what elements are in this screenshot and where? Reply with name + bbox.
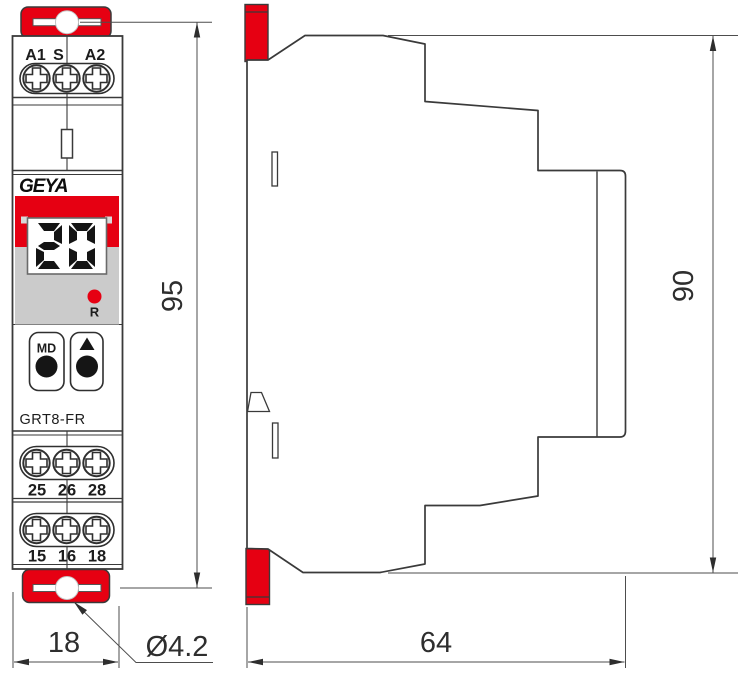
label-a2: A2: [85, 47, 106, 64]
screw-terminal: [23, 65, 49, 91]
fuse-symbol: [62, 130, 73, 159]
side-body-outline: [247, 36, 626, 573]
terminal-row-bottom: 15 16 18: [20, 514, 114, 566]
screw-terminal: [53, 65, 79, 91]
label-18: 18: [88, 548, 106, 566]
din-clip-bottom: [246, 549, 270, 605]
screw-terminal: [83, 65, 109, 91]
label-a1: A1: [25, 47, 46, 64]
dimension-64: 64: [247, 576, 626, 668]
side-vent-slot-top: [272, 152, 278, 186]
dimension-value-90: 90: [668, 270, 700, 302]
bottom-mounting-tab: [23, 570, 110, 603]
dimension-value-64: 64: [420, 627, 452, 659]
label-28: 28: [88, 482, 106, 500]
terminal-row-middle: 25 26 28: [20, 447, 114, 500]
screw-terminal: [83, 450, 109, 476]
mode-button-knob: [36, 356, 58, 378]
side-vent-slot-bottom: [273, 423, 279, 458]
brand-logo: GEYA: [19, 176, 68, 197]
terminal-row-top: [20, 64, 114, 94]
label-15: 15: [28, 548, 46, 566]
din-clip-top-red: [245, 5, 268, 62]
screw-terminal: [23, 517, 49, 543]
bottom-slot-right: [79, 585, 102, 592]
display-module: R: [15, 196, 119, 325]
mode-button-label: MD: [37, 342, 56, 356]
screw-terminal: [23, 450, 49, 476]
top-mounting-hole: [56, 11, 79, 34]
screw-terminal: [53, 517, 79, 543]
up-button-knob: [76, 356, 98, 378]
bottom-mounting-hole: [56, 577, 79, 600]
reset-led-label: R: [90, 305, 100, 320]
technical-drawing: A1 S A2 GEYA: [0, 0, 750, 688]
label-s: S: [53, 47, 64, 64]
front-view: A1 S A2 GEYA: [13, 7, 123, 603]
screw-terminal: [53, 450, 79, 476]
top-slot-left: [33, 19, 57, 26]
screw-terminal: [83, 517, 109, 543]
dimension-value-18: 18: [48, 627, 80, 659]
label-26: 26: [58, 482, 76, 500]
din-clip-top: [245, 5, 268, 62]
reset-led: [88, 290, 102, 304]
bottom-slot-left: [33, 585, 57, 592]
din-clip-bottom-red: [246, 549, 270, 605]
dimension-value-hole: Ø4.2: [146, 631, 209, 663]
dimension-value-95: 95: [157, 280, 189, 312]
label-16: 16: [58, 548, 76, 566]
model-label: GRT8-FR: [20, 412, 86, 428]
side-view: [245, 5, 626, 605]
label-25: 25: [28, 482, 46, 500]
hole-diameter-callout: Ø4.2: [74, 602, 213, 663]
dimension-drawing-page: A1 S A2 GEYA: [0, 0, 750, 688]
